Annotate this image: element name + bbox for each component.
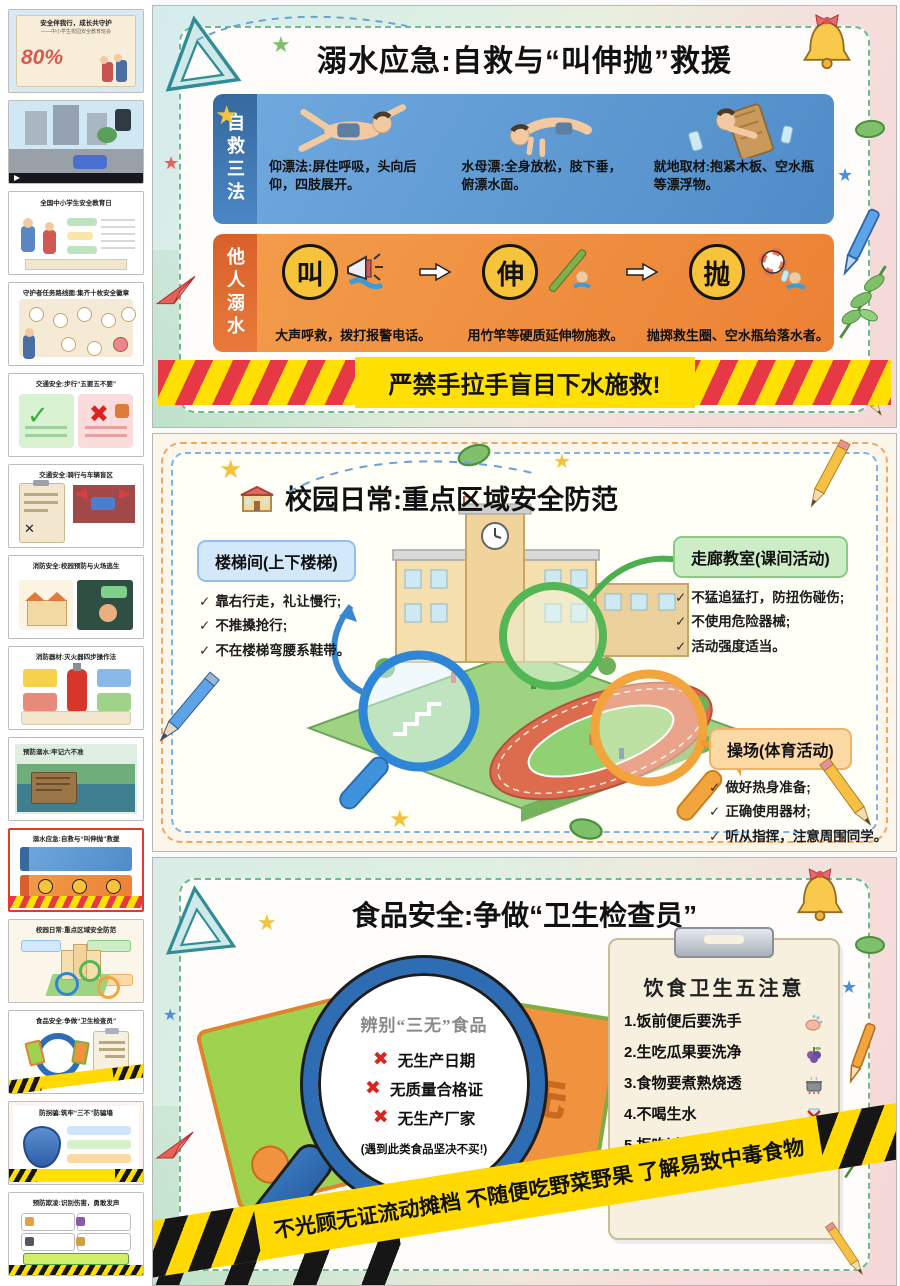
div-decor: 80% — [21, 46, 63, 70]
slide-thumbnail[interactable]: 预防欺凌:识别伤害，勇敢发声 — [8, 1192, 144, 1276]
star-icon: ★ — [257, 912, 277, 934]
leaf-icon — [565, 812, 607, 846]
div-decor — [21, 940, 61, 952]
paper-plane-icon — [155, 274, 197, 306]
div-decor — [29, 307, 44, 322]
circle-decor — [810, 1055, 818, 1063]
zone-label-stairs: 楼梯间(上下楼梯) — [197, 540, 356, 582]
div-decor — [20, 847, 29, 871]
step-extend-char: 伸 — [497, 253, 524, 292]
cooking-pot-icon — [804, 1075, 824, 1095]
slide-thumbnail[interactable]: 全国中小学生安全教育日 — [8, 191, 144, 275]
rect-decor — [605, 594, 621, 610]
div-decor — [115, 1169, 143, 1182]
magnifier-item: ✖无生产厂家 — [373, 1106, 475, 1129]
polygon-decor — [241, 487, 273, 495]
warning-banner-text: 严禁手拉手盲目下水施救! — [355, 357, 695, 408]
path-decor — [574, 285, 590, 288]
ellipse-decor — [806, 1020, 820, 1030]
magnifier-item-text: 无生产日期 — [398, 1049, 476, 1071]
rect-decor — [813, 1047, 815, 1052]
div-decor — [21, 226, 35, 252]
school-icon — [239, 483, 275, 513]
div-decor — [25, 1217, 34, 1226]
clipboard-item: 3.食物要煮熟烧透 — [624, 1073, 824, 1095]
rect-decor — [815, 446, 847, 494]
back-float-illustration — [283, 100, 423, 158]
slide-thumbnail[interactable]: 守护者任务路线图:集齐十枚安全徽章 — [8, 282, 144, 366]
check-icon: ✓ — [199, 618, 210, 633]
rect-decor — [780, 125, 793, 143]
div-decor — [23, 1253, 129, 1265]
slide-food: 食品安全:争做“卫生检查员” 无 辨别“三无”食品 ✖无生产日期 ✖无质量合格证… — [152, 857, 897, 1286]
magnifier-note: (遇到此类食品坚决不买!) — [361, 1141, 488, 1157]
presentation-app: 安全伴我行，成长共守护——中小学生校园安全教育班会80%全国中小学生安全教育日守… — [0, 0, 900, 1286]
rect-decor — [263, 499, 268, 504]
set-square-icon — [157, 880, 238, 961]
div-decor — [24, 509, 48, 512]
tip-text: 正确使用器材; — [725, 804, 811, 819]
self-rescue-section: 自救三法 仰漂法:屏住呼吸，头向后仰，四肢展开。 — [213, 94, 834, 224]
div-decor — [99, 1041, 125, 1044]
star-icon: ★ — [841, 978, 857, 996]
div-decor — [36, 777, 70, 779]
path-decor — [809, 1092, 819, 1094]
div-decor — [73, 663, 81, 671]
div-decor — [36, 783, 70, 785]
path-decor — [350, 280, 382, 287]
paper-plane-icon — [155, 1130, 195, 1160]
ellipse-decor — [815, 1047, 821, 1050]
tip-line: ✓不在楼梯弯腰系鞋带。 — [199, 639, 350, 663]
circle-decor — [813, 1015, 816, 1018]
slide-thumbnail[interactable]: 预防溺水:牢记六不准 — [8, 737, 144, 821]
div-decor: 交通安全:步行“五要五不要” — [9, 378, 143, 389]
div-decor — [91, 497, 115, 510]
others-drowning-section: 他人溺水 叫 — [213, 234, 834, 352]
rect-decor — [431, 604, 447, 622]
clipboard-item-text: 4.不喝生水 — [624, 1104, 697, 1126]
circle-decor — [822, 59, 831, 68]
step-throw: 抛 — [689, 244, 809, 300]
div-decor — [33, 480, 49, 486]
div-decor: 交通安全:骑行与车辆盲区 — [9, 469, 143, 480]
rect-decor — [807, 1083, 821, 1091]
star-icon: ★ — [389, 808, 411, 832]
path-decor — [289, 461, 537, 492]
div-decor: 校园日常:重点区域安全防范 — [9, 924, 143, 935]
path-decor — [805, 22, 850, 59]
div-decor — [76, 1217, 85, 1226]
div-decor — [105, 1028, 119, 1034]
polygon-decor — [807, 489, 824, 509]
step-extend-circle: 伸 — [482, 244, 538, 300]
div-decor — [67, 232, 93, 240]
ellipse-decor — [858, 307, 879, 323]
div-decor: ✖ — [89, 400, 109, 429]
div-decor — [97, 693, 131, 711]
arrow-right-icon — [625, 261, 659, 283]
slide-drowning: 溺水应急:自救与“叫伸抛”救援 自救三法 — [152, 5, 897, 428]
div-decor — [114, 54, 122, 62]
div-decor — [25, 111, 47, 145]
slide-thumbnail[interactable]: 交通安全:步行“五要五不要”✓✖ — [8, 373, 144, 457]
cross-icon: ✖ — [365, 1077, 381, 1100]
self-rescue-item: 就地取材:抱紧木板、空水瓶等漂浮物。 — [642, 94, 834, 224]
div-decor — [105, 1055, 125, 1058]
div-decor — [101, 313, 116, 328]
path-decor — [420, 264, 450, 280]
circle-decor — [595, 674, 703, 782]
dashed-squiggle — [193, 6, 413, 46]
path-decor — [798, 876, 841, 912]
rect-decor — [824, 764, 864, 813]
pole-rescue-icon — [542, 249, 594, 295]
slide-thumbnail[interactable]: 食品安全:争做“卫生检查员” — [8, 1010, 144, 1094]
star-icon: ★ — [163, 154, 179, 172]
tip-text: 靠右行走，礼让慢行; — [215, 594, 341, 609]
ellipse-decor — [862, 272, 887, 294]
tip-text: 活动强度适当。 — [691, 639, 786, 654]
step-extend: 伸 — [482, 244, 594, 300]
ellipse-decor — [568, 816, 603, 841]
circle-decor — [363, 655, 475, 767]
div-decor: 预防欺凌:识别伤害，勇敢发声 — [9, 1197, 143, 1208]
rect-decor — [246, 499, 251, 504]
jellyfish-float-illustration — [475, 100, 615, 158]
circle-decor — [576, 271, 588, 283]
polygon-decor — [348, 257, 366, 279]
div-decor — [61, 337, 76, 352]
path-decor — [811, 1077, 817, 1080]
slide-thumbnail[interactable]: 消防器材:灭火器四步操作法 — [8, 646, 144, 730]
arrow-right-icon — [418, 261, 452, 283]
cross-icon: ✖ — [373, 1048, 389, 1071]
path-decor — [787, 286, 805, 289]
fruit-icon — [804, 1044, 824, 1064]
megaphone-icon — [342, 249, 388, 295]
magnifier-item-text: 无生产厂家 — [398, 1107, 476, 1129]
div-decor — [24, 493, 58, 496]
clipboard-item-text: 1.饭前便后要洗手 — [624, 1011, 742, 1033]
div-decor — [73, 527, 135, 541]
tip-line: ✓不猛追猛打，防扭伤碰伤; — [675, 586, 844, 610]
rect-decor — [571, 570, 587, 588]
check-icon: ✓ — [709, 780, 720, 795]
bell-icon — [799, 12, 855, 74]
slide-thumbnail[interactable] — [8, 100, 144, 184]
div-decor — [55, 972, 79, 996]
warning-banner: 严禁手拉手盲目下水施救! — [158, 360, 891, 405]
div-decor — [76, 1237, 85, 1246]
div-decor — [53, 313, 68, 328]
div-decor: 守护者任务路线图:集齐十枚安全徽章 — [9, 287, 143, 298]
tip-line: ✓不使用危险器械; — [675, 610, 844, 634]
div-decor — [97, 669, 131, 687]
div-decor — [24, 501, 58, 504]
others-drowning-label: 他人溺水 — [222, 247, 248, 339]
div-decor — [25, 434, 67, 437]
circle-decor — [820, 1021, 823, 1024]
polygon-decor — [810, 499, 816, 507]
div-decor — [77, 1213, 131, 1231]
rect-decor — [405, 570, 421, 588]
slide-thumbnail[interactable]: 消防安全:校园预防与火场逃生 — [8, 555, 144, 639]
zone-label-corridor: 走廊教室(课间活动) — [673, 536, 848, 578]
div-decor: 安全伴我行，成长共守护 — [9, 17, 143, 28]
clip-hole — [704, 935, 744, 944]
tip-text: 不使用危险器械; — [691, 614, 790, 629]
div-decor — [36, 789, 62, 791]
tip-line: ✓活动强度适当。 — [675, 635, 844, 659]
div-decor — [72, 879, 87, 894]
div-decor — [9, 1265, 143, 1275]
tip-text: 不在楼梯弯腰系鞋带。 — [215, 643, 350, 658]
div-decor — [23, 218, 33, 228]
div-decor — [67, 1126, 131, 1135]
others-drowning-label-strip: 他人溺水 — [213, 234, 257, 352]
div-decor — [99, 604, 117, 622]
div-decor — [101, 219, 135, 253]
step-call-char: 叫 — [297, 253, 324, 292]
clipboard-item-text: 3.食物要煮熟烧透 — [624, 1073, 742, 1095]
magnifier-item: ✖无质量合格证 — [365, 1077, 483, 1100]
step-throw-char: 抛 — [703, 253, 730, 292]
tip-text: 不推搡抢行; — [215, 618, 287, 633]
div-decor — [79, 960, 101, 982]
polygon-decor — [846, 1065, 860, 1083]
div-decor — [53, 105, 79, 145]
div-decor — [87, 341, 102, 356]
div-decor — [23, 669, 57, 687]
div-decor — [100, 56, 108, 64]
star-icon: ★ — [163, 1008, 177, 1024]
check-icon: ✓ — [199, 643, 210, 658]
slide-thumbnail-sidebar: 安全伴我行，成长共守护——中小学生校园安全教育班会80%全国中小学生安全教育日守… — [0, 0, 152, 1286]
zone-tips-stairs: ✓靠右行走，礼让慢行; ✓不推搡抢行; ✓不在楼梯弯腰系鞋带。 — [199, 590, 350, 663]
circle-decor — [823, 17, 830, 24]
div-decor — [25, 1237, 34, 1246]
others-drowning-body: 叫 伸 — [257, 234, 834, 352]
rect-decor — [659, 594, 675, 610]
star-icon: ★ — [553, 452, 571, 472]
div-decor — [77, 1233, 131, 1251]
div-decor — [77, 307, 92, 322]
rect-decor — [405, 604, 421, 622]
clipboard-item-text: 2.生吃瓜果要洗净 — [624, 1042, 742, 1064]
rect-decor — [431, 570, 447, 588]
div-decor — [67, 246, 97, 254]
path-decor — [302, 136, 328, 149]
div-decor — [27, 600, 67, 626]
div-decor — [121, 307, 136, 322]
div-decor — [38, 879, 53, 894]
div-decor — [113, 337, 128, 352]
slide-thumbnail-selected[interactable]: 溺水应急:自救与“叫伸抛”救援 — [8, 828, 144, 912]
star-icon: ★ — [215, 102, 238, 128]
div-decor: ✕ — [24, 521, 35, 537]
magnifier-item-text: 无质量合格证 — [390, 1078, 483, 1100]
slide-campus: 校园日常:重点区域安全防范 楼梯间(上下楼梯) ✓靠右行走，礼让慢行; ✓不推搡… — [152, 433, 897, 852]
div-decor: ——中小学生校园安全教育班会 — [9, 28, 143, 35]
star-icon: ★ — [837, 166, 853, 184]
zone-tips-corridor: ✓不猛追猛打，防扭伤碰伤; ✓不使用危险器械; ✓活动强度适当。 — [675, 586, 844, 659]
div-decor — [115, 109, 131, 131]
step-call: 叫 — [282, 244, 388, 300]
magnifier-item: ✖无生产日期 — [373, 1048, 475, 1071]
div-decor: 消防器材:灭火器四步操作法 — [9, 651, 143, 662]
div-decor — [9, 1169, 37, 1182]
clipboard-heading: 饮食卫生五注意 — [610, 972, 838, 1001]
div-decor — [25, 328, 34, 337]
div-decor — [97, 127, 117, 143]
check-icon: ✓ — [675, 590, 686, 605]
circle-decor — [789, 272, 801, 284]
div-decor: 全国中小学生安全教育日 — [9, 197, 143, 208]
hold-plank-illustration — [668, 100, 808, 158]
slide-thumbnail[interactable]: 安全伴我行，成长共守护——中小学生校园安全教育班会80% — [8, 9, 144, 93]
div-decor — [67, 218, 97, 226]
div-decor — [10, 896, 142, 908]
div-decor — [67, 669, 87, 713]
self-rescue-item: 仰漂法:屏住呼吸，头向后仰，四肢展开。 — [257, 94, 449, 224]
check-icon: ✓ — [709, 829, 720, 844]
tip-text: 不猛追猛打，防扭伤碰伤; — [691, 590, 844, 605]
circle-decor — [816, 871, 823, 878]
step-extend-caption: 用竹竿等硬质延伸物施救。 — [449, 325, 641, 344]
check-icon: ✓ — [709, 804, 720, 819]
circle-decor — [816, 1016, 819, 1019]
self-rescue-caption: 仰漂法:屏住呼吸，头向后仰，四肢展开。 — [269, 158, 437, 194]
div-decor — [21, 711, 131, 725]
step-call-caption: 大声呼救，拨打报警电话。 — [257, 325, 449, 344]
branch-icon — [829, 258, 895, 344]
cross-icon: ✖ — [373, 1106, 389, 1129]
dashed-squiggle — [283, 448, 543, 498]
tip-line: ✓不推搡抢行; — [199, 614, 350, 638]
div-decor: 预防溺水:牢记六不准 — [9, 746, 143, 757]
clipboard-item: 1.饭前便后要洗手 — [624, 1011, 824, 1033]
div-decor: 消防安全:校园预防与火场逃生 — [9, 560, 143, 571]
path-decor — [304, 112, 328, 128]
rect-decor — [806, 1081, 822, 1084]
rect-decor — [254, 501, 260, 511]
rect-decor — [556, 122, 573, 134]
div-decor — [106, 879, 121, 894]
self-rescue-item: 水母漂:全身放松，肢下垂，俯漂水面。 — [449, 94, 641, 224]
div-decor — [43, 230, 56, 254]
div-decor — [101, 586, 127, 598]
tip-text: 做好热身准备; — [725, 780, 811, 795]
div-decor — [73, 155, 107, 169]
div-decor — [25, 426, 67, 429]
slide-thumbnail[interactable]: 校园日常:重点区域安全防范 — [8, 919, 144, 1003]
div-decor — [67, 1154, 131, 1163]
div-decor: 食品安全:争做“卫生检查员” — [9, 1015, 143, 1026]
div-decor — [20, 847, 132, 871]
check-icon: ✓ — [199, 594, 210, 609]
div-decor — [9, 173, 143, 183]
div-decor — [85, 434, 127, 437]
div-decor — [20, 875, 29, 897]
self-rescue-caption: 就地取材:抱紧木板、空水瓶等漂浮物。 — [654, 158, 822, 194]
step-throw-circle: 抛 — [689, 244, 745, 300]
check-icon: ✓ — [675, 614, 686, 629]
div-decor — [23, 335, 35, 359]
div-decor: 溺水应急:自救与“叫伸抛”救援 — [10, 833, 142, 844]
div-decor — [99, 1048, 125, 1051]
div-decor: 防拐骗:筑牢“三不”防骗墙 — [9, 1107, 143, 1118]
div-decor — [115, 404, 129, 418]
path-decor — [627, 264, 657, 280]
step-call-circle: 叫 — [282, 244, 338, 300]
path-decor — [197, 17, 407, 40]
div-decor — [67, 1140, 131, 1149]
corridor-magnifier — [503, 586, 603, 686]
self-rescue-body: 仰漂法:屏住呼吸，头向后仰，四肢展开。 水母漂:全身放松，肢下垂，俯漂水面。 — [257, 94, 834, 224]
rect-decor — [337, 754, 392, 812]
star-icon: ★ — [219, 456, 242, 482]
magnifier-heading: 辨别“三无”食品 — [361, 1011, 488, 1036]
rescue-steps-captions: 大声呼救，拨打报警电话。 用竹竿等硬质延伸物施救。 抛掷救生圈、空水瓶给落水者。 — [257, 325, 834, 344]
div-decor — [25, 259, 127, 270]
div-decor — [23, 693, 57, 711]
div-decor — [45, 222, 54, 231]
path-decor — [374, 254, 383, 280]
rect-decor — [631, 594, 647, 610]
ellipse-decor — [855, 120, 885, 139]
rect-decor — [337, 123, 359, 137]
rescue-steps-row: 叫 伸 — [267, 240, 824, 304]
clipboard-clip — [674, 927, 774, 958]
slide-thumbnail[interactable]: 防拐骗:筑牢“三不”防骗墙 — [8, 1101, 144, 1185]
div-decor — [97, 976, 120, 999]
div-decor — [85, 426, 127, 429]
self-rescue-caption: 水母漂:全身放松，肢下垂，俯漂水面。 — [461, 158, 629, 194]
check-icon: ✓ — [675, 639, 686, 654]
path-decor — [530, 139, 543, 154]
rect-decor — [829, 1227, 858, 1265]
tip-line: ✓靠右行走，礼让慢行; — [199, 590, 350, 614]
ellipse-decor — [856, 937, 885, 954]
rect-decor — [688, 131, 703, 152]
clipboard-item: 2.生吃瓜果要洗净 — [624, 1042, 824, 1064]
lifebuoy-icon — [749, 248, 809, 296]
step-throw-caption: 抛掷救生圈、空水瓶给落水者。 — [642, 325, 834, 344]
div-decor — [116, 60, 127, 82]
bell-icon — [793, 866, 847, 926]
slide-thumbnail[interactable]: 交通安全:骑行与车辆盲区✕ — [8, 464, 144, 548]
rect-decor — [366, 260, 371, 277]
div-decor — [102, 62, 113, 82]
wash-hands-icon — [804, 1013, 824, 1033]
circle-decor — [816, 911, 825, 920]
